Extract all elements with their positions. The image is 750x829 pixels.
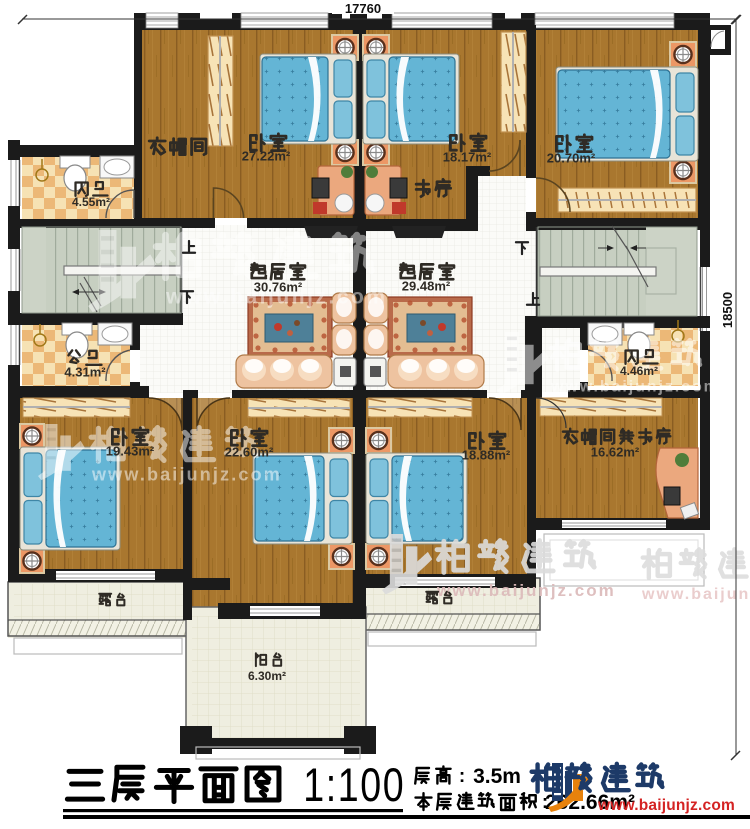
svg-text:30.76m²: 30.76m²: [254, 280, 303, 295]
svg-text:3.5m: 3.5m: [473, 765, 521, 788]
svg-text:18500: 18500: [720, 292, 735, 328]
svg-text:4.55m²: 4.55m²: [72, 195, 110, 209]
svg-text:4.31m²: 4.31m²: [64, 365, 106, 380]
svg-text:19.43m²: 19.43m²: [106, 444, 155, 459]
svg-text:29.48m²: 29.48m²: [402, 279, 451, 294]
svg-text:www.baijunjz.c: www.baijunjz.c: [641, 586, 750, 603]
svg-text:20.70m²: 20.70m²: [547, 151, 596, 166]
svg-text:27.22m²: 27.22m²: [242, 149, 291, 164]
svg-text:18.88m²: 18.88m²: [462, 448, 511, 463]
svg-text:www.baijunjz.com: www.baijunjz.com: [597, 797, 735, 814]
svg-text:22.60m²: 22.60m²: [225, 445, 274, 460]
svg-text:6.30m²: 6.30m²: [248, 669, 286, 683]
svg-text:16.62m²: 16.62m²: [591, 445, 640, 460]
svg-text:18.17m²: 18.17m²: [443, 150, 492, 165]
svg-text:www.baijunjz.com: www.baijunjz.com: [550, 379, 720, 396]
svg-text:4.46m²: 4.46m²: [620, 364, 658, 378]
svg-text:www.baijunjz.com: www.baijunjz.com: [436, 581, 616, 600]
svg-text:www.baijunjz.com: www.baijunjz.com: [91, 464, 282, 484]
svg-text:1:100: 1:100: [303, 759, 405, 812]
svg-text:17760: 17760: [345, 1, 381, 16]
svg-text::: :: [459, 766, 465, 787]
